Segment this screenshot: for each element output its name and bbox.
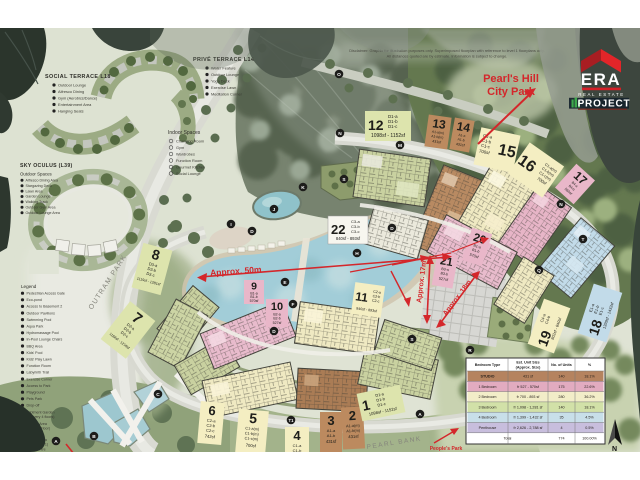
svg-text:Kids' Play Lawn: Kids' Play Lawn	[27, 358, 52, 362]
svg-text:4 Bedroom: 4 Bedroom	[478, 416, 496, 420]
svg-text:570sf: 570sf	[250, 299, 259, 303]
svg-text:K: K	[301, 185, 305, 191]
svg-text:C2-c: C2-c	[206, 428, 215, 434]
svg-text:Lawn Area: Lawn Area	[26, 189, 43, 193]
svg-text:431sf: 431sf	[326, 439, 337, 444]
svg-text:Social Lounge: Social Lounge	[176, 171, 201, 176]
svg-text:Labyrinth Trail: Labyrinth Trail	[27, 371, 50, 375]
svg-text:431 sf: 431 sf	[523, 375, 534, 379]
svg-text:C: C	[156, 392, 160, 398]
svg-text:Q: Q	[537, 268, 541, 274]
svg-text:REAL ESTATE: REAL ESTATE	[578, 92, 625, 97]
svg-text:Eco-pond: Eco-pond	[27, 298, 42, 302]
svg-text:No. of Units: No. of Units	[551, 363, 572, 367]
svg-text:N: N	[612, 446, 617, 453]
svg-text:100.00%: 100.00%	[582, 436, 597, 440]
svg-text:Outdoor Spaces: Outdoor Spaces	[20, 172, 53, 177]
svg-text:4: 4	[293, 428, 301, 443]
svg-text:11: 11	[354, 289, 369, 305]
svg-text:Gym: Gym	[176, 145, 184, 150]
svg-text:Gourmet Kitchen: Gourmet Kitchen	[176, 165, 205, 170]
svg-text:STUDIO: STUDIO	[481, 375, 495, 379]
svg-text:BBQ Area: BBQ Area	[27, 344, 43, 348]
svg-text:fr 2,626 - 2,788 sf: fr 2,626 - 2,788 sf	[514, 426, 544, 430]
svg-text:In-Pool Lounge Chairs: In-Pool Lounge Chairs	[27, 338, 63, 342]
svg-text:(Approx. Size): (Approx. Size)	[516, 366, 542, 370]
svg-text:4.5%: 4.5%	[585, 416, 594, 420]
svg-text:6: 6	[208, 403, 217, 419]
svg-text:742sf: 742sf	[205, 434, 216, 440]
svg-text:A: A	[418, 412, 422, 418]
svg-text:Function Room: Function Room	[27, 364, 51, 368]
svg-text:12: 12	[368, 117, 384, 133]
svg-text:3 Bedroom: 3 Bedroom	[478, 405, 496, 409]
svg-text:Wardrobes: Wardrobes	[176, 152, 195, 157]
svg-text:T: T	[582, 237, 585, 243]
svg-text:D1-c: D1-c	[388, 124, 398, 129]
svg-text:H: H	[355, 251, 359, 257]
svg-text:Exercise Lawn: Exercise Lawn	[211, 85, 236, 90]
svg-text:Legend: Legend	[21, 284, 37, 289]
svg-text:B: B	[92, 434, 96, 440]
svg-text:18.1%: 18.1%	[584, 375, 595, 379]
svg-text:Aqua Park: Aqua Park	[27, 325, 44, 329]
svg-text:A1-b(m): A1-b(m)	[346, 429, 361, 434]
svg-text:18.1%: 18.1%	[584, 405, 595, 409]
svg-text:C3-c: C3-c	[351, 229, 359, 234]
svg-text:R: R	[468, 348, 472, 354]
svg-text:N: N	[559, 202, 563, 208]
svg-text:Indoor Spaces: Indoor Spaces	[168, 130, 201, 136]
svg-text:431sf: 431sf	[348, 434, 359, 440]
svg-text:0.5%: 0.5%	[585, 426, 594, 430]
svg-text:Hydromassage Pool: Hydromassage Pool	[27, 331, 60, 335]
svg-text:Outdoor Lounge Area: Outdoor Lounge Area	[26, 211, 60, 215]
svg-text:774: 774	[558, 436, 564, 440]
svg-text:A: A	[54, 439, 58, 445]
svg-text:Access to Basement 2: Access to Basement 2	[27, 305, 63, 309]
svg-text:Outdoor Gym Area: Outdoor Gym Area	[26, 206, 56, 210]
svg-text:Exercise Corner: Exercise Corner	[27, 377, 54, 381]
svg-text:Alfresco Dining Area: Alfresco Dining Area	[26, 179, 59, 183]
svg-text:Penthouse: Penthouse	[479, 426, 497, 430]
svg-text:Alfresco Dining: Alfresco Dining	[58, 89, 84, 94]
svg-text:840sf - 893sf: 840sf - 893sf	[336, 236, 361, 241]
svg-text:D: D	[272, 329, 276, 335]
svg-text:D: D	[250, 229, 254, 235]
svg-text:SKY OCULUS (L39): SKY OCULUS (L39)	[20, 163, 73, 169]
svg-text:Pedestrian Access Gate: Pedestrian Access Gate	[27, 292, 65, 296]
svg-text:140: 140	[558, 405, 564, 409]
svg-text:Swimming Pool: Swimming Pool	[27, 318, 52, 322]
svg-text:Bedroom Type: Bedroom Type	[475, 363, 501, 367]
svg-text:N: N	[338, 131, 342, 137]
svg-text:Garden Lounge: Garden Lounge	[26, 195, 51, 199]
svg-text:Total: Total	[504, 436, 512, 440]
svg-text:Stargazing Deck: Stargazing Deck	[26, 184, 53, 188]
svg-text:2 Bedroom: 2 Bedroom	[478, 395, 496, 399]
svg-text:Outdoor Pavilions: Outdoor Pavilions	[27, 311, 56, 315]
svg-text:ERA: ERA	[581, 70, 621, 89]
svg-text:Yoga Deck: Yoga Deck	[211, 79, 230, 84]
svg-text:A1-a(m): A1-a(m)	[346, 424, 361, 429]
svg-text:280: 280	[558, 395, 564, 399]
svg-text:People's Park: People's Park	[430, 446, 463, 452]
svg-text:O: O	[337, 72, 341, 78]
svg-text:fr 527 - 570sf: fr 527 - 570sf	[517, 385, 540, 389]
svg-text:PROJECT: PROJECT	[578, 99, 631, 110]
svg-text:22: 22	[331, 222, 345, 237]
svg-text:3: 3	[327, 413, 334, 428]
svg-text:Access to Park: Access to Park	[27, 384, 51, 388]
svg-text:City Park: City Park	[487, 86, 536, 98]
svg-text:Hanging Seats: Hanging Seats	[58, 109, 84, 114]
svg-text:Pearl's Hill: Pearl's Hill	[483, 73, 539, 85]
svg-text:B2-b: B2-b	[273, 317, 280, 321]
svg-text:15: 15	[496, 141, 517, 161]
svg-text:fr 700 - 893 sf: fr 700 - 893 sf	[517, 395, 541, 399]
svg-text:1098sf - 1152sf: 1098sf - 1152sf	[371, 133, 406, 139]
svg-text:Kids' Pool: Kids' Pool	[27, 351, 43, 355]
svg-text:700sf: 700sf	[246, 443, 257, 449]
svg-text:fr 1,399 - 1,432 sf: fr 1,399 - 1,432 sf	[514, 416, 544, 420]
svg-text:Playground: Playground	[27, 391, 45, 395]
svg-text:F: F	[292, 302, 295, 308]
svg-text:D: D	[390, 226, 394, 232]
svg-text:Outdoor Lounge: Outdoor Lounge	[211, 72, 239, 77]
svg-text:A1-b: A1-b	[327, 433, 336, 438]
svg-text:Pets Park: Pets Park	[27, 397, 43, 401]
svg-text:T1: T1	[289, 418, 295, 423]
svg-text:All distances quoted are by es: All distances quoted are by estimate. In…	[387, 54, 508, 59]
svg-text:Est. Unit Size: Est. Unit Size	[516, 361, 539, 365]
svg-text:4: 4	[560, 426, 562, 430]
svg-text:fr 1,098 - 1,281 sf: fr 1,098 - 1,281 sf	[514, 405, 544, 409]
svg-text:Gym (Aerobics/Dance): Gym (Aerobics/Dance)	[58, 96, 98, 101]
svg-text:36.2%: 36.2%	[584, 395, 595, 399]
svg-text:527sf: 527sf	[273, 321, 282, 325]
svg-text:140: 140	[558, 375, 564, 379]
svg-text:Function Room: Function Room	[176, 158, 202, 163]
svg-text:1 Bedroom: 1 Bedroom	[478, 385, 496, 389]
svg-text:SOCIAL TERRACE L18: SOCIAL TERRACE L18	[45, 74, 111, 80]
svg-text:35: 35	[559, 416, 563, 420]
svg-text:J: J	[273, 207, 276, 213]
svg-text:175: 175	[558, 385, 564, 389]
svg-text:10: 10	[271, 301, 283, 313]
svg-text:22.6%: 22.6%	[584, 385, 595, 389]
svg-text:Meditation Corner: Meditation Corner	[211, 92, 243, 97]
svg-text:Drop-off: Drop-off	[27, 404, 40, 408]
svg-text:5: 5	[249, 410, 258, 427]
svg-text:Entertainment Area: Entertainment Area	[58, 102, 92, 107]
svg-text:Walking Track: Walking Track	[26, 200, 49, 204]
svg-text:2: 2	[348, 408, 356, 423]
svg-text:Changing Room: Changing Room	[176, 139, 204, 144]
svg-text:Outdoor Lounge: Outdoor Lounge	[58, 83, 86, 88]
svg-text:M: M	[398, 143, 402, 149]
